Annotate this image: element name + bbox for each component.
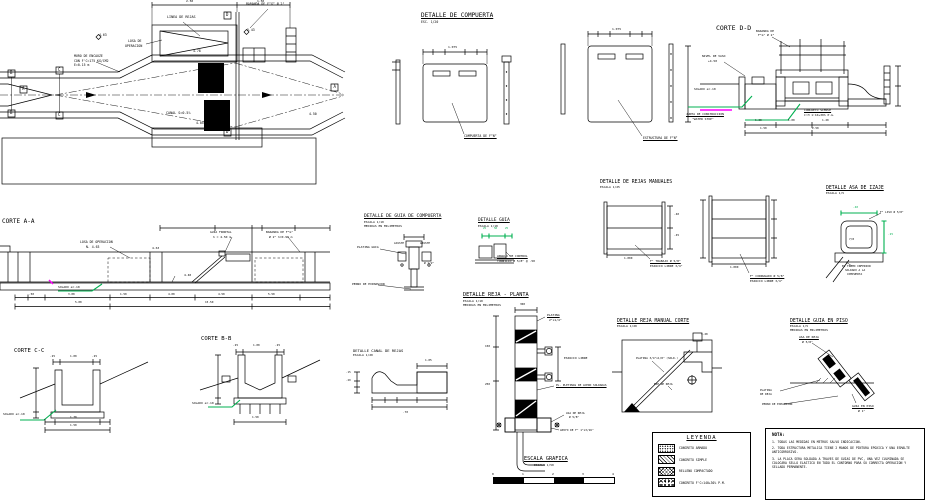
annotation-label: NIVEL DE VASO: [702, 55, 725, 58]
legend-box: LEYENDA CONCRETO ARMADOCONCRETO SIMPLERE…: [652, 432, 751, 497]
annotation-label: D: [226, 130, 228, 134]
annotation-label: SOLADO e=.10: [3, 413, 25, 416]
annotation-label: B: [10, 71, 12, 75]
guia-piso-drawing: [780, 343, 874, 408]
annotation-label: C: [58, 68, 60, 72]
legend-swatch-diagonal: [658, 455, 675, 464]
title-corte-d-d: CORTE D-D: [716, 25, 751, 32]
annotation-label: 1.20: [755, 119, 762, 122]
annotation-label: ESCALA 1/20: [353, 354, 373, 357]
scale-tick-label: 1: [522, 472, 524, 476]
annotation-label: 2.50: [186, 0, 193, 3]
annotation-label: ASA DE REJA: [799, 336, 819, 339]
annotation-label: 1.30: [70, 416, 77, 419]
annotation-label: .20: [346, 380, 351, 383]
legend-item-label: RELLENO COMPACTADO: [679, 469, 713, 473]
annotation-label: 1.20: [701, 333, 708, 336]
note-item: 2. TODA ESTRUCTURA METALICA TIENE 2 MANO…: [772, 446, 919, 454]
annotation-label: TORNILLO Ø 5/8" @ .50: [497, 260, 535, 263]
annotation-label: 4.00: [168, 293, 175, 296]
annotation-label: 5.00: [75, 301, 82, 304]
note-item: 1. TODAS LAS MEDIDAS EN METROS SALVO IND…: [772, 440, 919, 444]
annotation-label: "WATER STOP": [692, 118, 714, 121]
notes-title: NOTA:: [772, 432, 924, 437]
annotation-label: 1.000: [730, 266, 738, 269]
annotation-label: PERNO DE EXPANSION: [352, 283, 385, 286]
annotation-label: .15: [346, 372, 351, 375]
annotation-label: APOYO DE F° 1"x3/16": [560, 429, 594, 432]
annotation-label: Ø 5/8": [569, 416, 579, 419]
annotation-label: MEDIDAS EN MILIMETROS: [364, 225, 402, 228]
scale-tick-label: 4: [612, 472, 614, 476]
annotation-label: .40: [853, 206, 858, 209]
annotation-label: ESCALA 1/5: [826, 192, 844, 195]
annotation-label: ESPACIO LIBRE 3/4": [750, 280, 783, 283]
annotation-label: E=0.15 m: [74, 64, 89, 67]
annotation-label: ESPACIO LIBRE 3/4": [650, 265, 683, 268]
scale-segment: [554, 478, 584, 483]
annotation-label: A: [334, 85, 336, 89]
scale-segment: [524, 478, 554, 483]
annotation-label: 1.50: [760, 127, 767, 130]
annotation-label: 15.50: [205, 301, 213, 304]
annotation-label: B: [10, 111, 12, 115]
annotation-label: 1.00: [70, 355, 77, 358]
annotation-label: MEDIDAS EN MILIMETROS: [463, 304, 501, 307]
annotation-label: .25: [50, 355, 55, 358]
annotation-label: 4.05: [196, 122, 204, 125]
annotation-label: 4.50: [218, 293, 225, 296]
annotation-label: GUIA FRONTAL: [210, 231, 232, 234]
annotation-label: Ø 2" h=0.90 m: [269, 236, 292, 239]
annotation-label: Ø 5/8": [802, 341, 813, 344]
annotation-label: 1.20: [822, 119, 829, 122]
reja-manual-corte-drawing: [612, 333, 722, 412]
annotation-label: CONCRETO SIMPLE: [804, 109, 831, 112]
title-detalle-guia: DETALLE GUIA: [478, 219, 510, 224]
annotation-label: Ø 1/2": [424, 262, 434, 265]
annotation-label: BARANDA DE F°G°: [266, 231, 293, 234]
annotation-label: .25: [92, 355, 97, 358]
annotation-label: 25: [483, 228, 486, 231]
annotation-label: 1.50: [120, 293, 127, 296]
annotation-label: 1.05: [425, 359, 432, 362]
annotation-label: 1.075: [448, 46, 457, 49]
annotation-label: ANGULO DE CONTROL: [497, 255, 528, 258]
title-detalle-de-compuerta: DETALLE DE COMPUERTA: [421, 13, 493, 19]
annotation-label: .25: [888, 233, 893, 236]
annotation-label: 4.50: [309, 113, 317, 116]
annotation-label: PLATINA GUIA: [357, 246, 379, 249]
annotation-label: 1.000: [624, 257, 632, 260]
annotation-label: LOSA DE: [128, 40, 141, 43]
legend-item-label: CONCRETO SIMPLE: [679, 458, 707, 462]
plan-view-drawing: [0, 2, 345, 184]
annotation-label: N. 4.63: [86, 246, 99, 249]
annotation-label: 7/8: [849, 238, 854, 241]
annotation-label: 1.50: [252, 416, 259, 419]
annotation-label: C: [58, 113, 60, 117]
annotation-label: PL. PLETINAS DE ACERO SOLDADAS: [556, 384, 607, 387]
legend-item-label: CONCRETO ARMADO: [679, 446, 707, 450]
scale-segment: [494, 478, 524, 483]
annotation-label: .70: [403, 411, 408, 414]
rejas-manuales-drawing: [604, 196, 777, 273]
annotation-label: LINEA DE REJAS: [167, 16, 196, 20]
graphic-scale-bar: 01234: [493, 477, 615, 484]
legend-title: LEYENDA: [653, 435, 750, 441]
legend-row: RELLENO COMPACTADO: [658, 467, 750, 476]
annotation-label: ESC. 1/20: [421, 21, 438, 24]
annotation-label: 5.50: [268, 293, 275, 296]
annotation-label: 250: [485, 383, 490, 386]
annotation-label: Ø 1": [858, 410, 865, 413]
legend-item-label: CONCRETO F'C=140+30% P.M.: [679, 481, 726, 485]
corte-bb-drawing: [200, 349, 320, 425]
compuerta-detail-drawing: [392, 31, 691, 136]
annotation-label: A: [22, 87, 24, 91]
annotation-label: 3.00: [68, 293, 75, 296]
annotation-label: .45: [674, 234, 679, 237]
annotation-label: 4.40: [184, 274, 191, 277]
annotation-label: COMPUERTA: [847, 273, 862, 276]
corte-cc-drawing: [20, 359, 148, 433]
note-items: 1. TODAS LAS MEDIDAS EN METROS SALVO IND…: [766, 440, 924, 469]
annotation-label: OPERACION: [125, 45, 142, 48]
annotation-label: 4.63: [99, 34, 107, 37]
annotation-label: DE REJA: [760, 393, 772, 396]
annotation-label: 4.78: [193, 50, 201, 53]
legend-row: CONCRETO SIMPLE: [658, 455, 750, 464]
annotation-label: ESPACIO LIBRE: [564, 357, 587, 360]
annotation-label: SOLADO e=.10: [192, 402, 214, 405]
scale-tick-label: 3: [582, 472, 584, 476]
annotation-label: MURO DE ENCAUZE: [74, 55, 103, 58]
annotation-label: AJUSTE: [420, 242, 430, 245]
annotation-label: 2.50: [812, 127, 819, 130]
annotation-label: SOLADO e=.10: [58, 286, 80, 289]
title-detalle-reja-planta: DETALLE REJA - PLANTA: [463, 293, 529, 298]
notes-box: NOTA: 1. TODAS LAS MEDIDAS EN METROS SAL…: [765, 428, 925, 500]
annotation-label: F° CORRUGADO Ø 5/8": [750, 275, 784, 278]
annotation-label: .50: [29, 293, 34, 296]
cad-linework: [0, 0, 926, 501]
cad-drawing-sheet: LEYENDA CONCRETO ARMADOCONCRETO SIMPLERE…: [0, 0, 926, 501]
annotation-label: JUNTA DE CONSTRUCCION: [686, 113, 724, 116]
annotation-label: SOLADO e=.10: [694, 88, 716, 91]
annotation-label: 150: [485, 345, 490, 348]
annotation-label: COMPUERTA DE F°N°: [464, 135, 497, 138]
annotation-label: ESCALA 1/25: [600, 186, 620, 189]
annotation-label: 1.50: [257, 0, 264, 3]
annotation-label: CANAL S=0.5%: [166, 112, 191, 116]
title-corte-c-c: CORTE C-C: [14, 349, 44, 355]
annotation-label: ESCALA 1/20: [617, 325, 637, 328]
annotation-label: 1.00: [253, 344, 260, 347]
reja-planta-drawing: [493, 307, 564, 471]
title-corte-a-a: CORTE A-A: [2, 219, 35, 225]
title-corte-b-b: CORTE B-B: [201, 337, 231, 343]
annotation-label: 50: [494, 228, 497, 231]
annotation-label: ESCALA 1/50: [534, 464, 554, 467]
legend-swatch-stipple: [658, 444, 675, 453]
annotation-label: F° LISO Ø 5/8": [880, 211, 904, 214]
annotation-label: 5.43: [247, 29, 255, 32]
annotation-label: 300: [520, 303, 525, 306]
annotation-label: .40: [674, 213, 679, 216]
annotation-label: D: [226, 13, 228, 17]
annotation-label: EJE DE REJA: [654, 383, 673, 386]
annotation-label: C:H 1:10+30% P.G.: [804, 114, 835, 117]
annotation-label: h = 4.50 m: [213, 236, 231, 239]
canal-rejas-drawing: [354, 363, 447, 410]
annotation-label: 1.00: [788, 119, 795, 122]
legend-swatch-rubble: [658, 478, 675, 487]
annotation-label: 1.075: [612, 28, 621, 31]
annotation-label: 25: [505, 228, 508, 231]
annotation-label: LOSA DE OPERACION: [80, 241, 113, 244]
annotation-label: GUIA EN PISO: [852, 405, 874, 408]
scale-tick-label: 0: [492, 472, 494, 476]
annotation-label: MEDIDAS EN MILIMETROS: [790, 329, 828, 332]
annotation-label: ESTRUCTURA DE F°N°: [643, 137, 678, 140]
annotation-label: AJUSTE: [394, 242, 404, 245]
scale-tick-label: 2: [552, 472, 554, 476]
note-item: 3. LA PLACA SERA SOLDADA A TRAVES DE GUI…: [772, 457, 919, 469]
annotation-label: PLATINA 3/4"x1/8" (SOLD.): [636, 357, 678, 360]
legend-row: CONCRETO F'C=140+30% P.M.: [658, 478, 750, 487]
legend-swatch-crosshatch: [658, 467, 675, 476]
annotation-label: .25: [233, 344, 238, 347]
annotation-label: PERNO DE EXPANSION: [762, 403, 792, 406]
annotation-label: +4.50: [708, 60, 717, 63]
annotation-label: F°G° Ø 2": [758, 34, 774, 37]
annotation-label: F° TRABAJO Ø 5/8": [650, 260, 681, 263]
annotation-label: 1.50: [70, 424, 77, 427]
scale-segment: [584, 478, 614, 483]
annotation-label: PLATINA: [547, 314, 560, 317]
title-escala-grafica: ESCALA GRAFICA: [524, 457, 568, 462]
annotation-label: .25: [275, 344, 280, 347]
legend-row: CONCRETO ARMADO: [658, 444, 750, 453]
legend-rows: CONCRETO ARMADOCONCRETO SIMPLERELLENO CO…: [653, 444, 750, 488]
annotation-label: BARANDA DE F°G° Ø 2": [246, 3, 284, 6]
annotation-label: 4.63: [152, 247, 159, 250]
annotation-label: 2"x1/4": [549, 319, 562, 322]
